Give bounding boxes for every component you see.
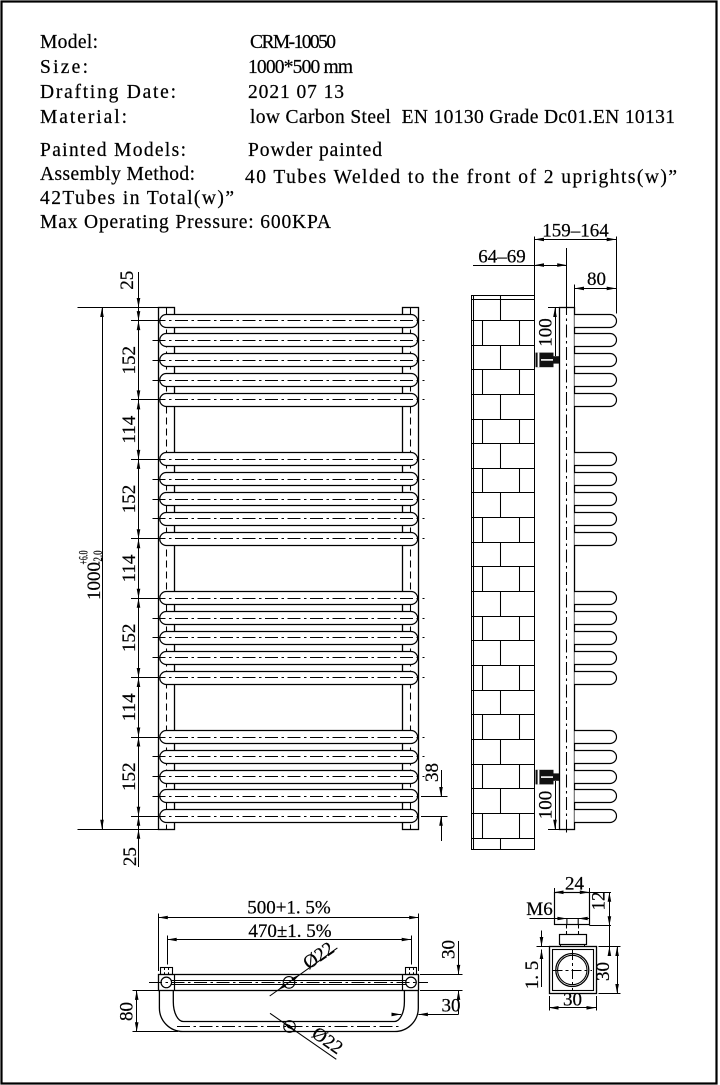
- svg-text:25: 25: [117, 271, 138, 290]
- svg-text:30: 30: [442, 996, 461, 1017]
- svg-text:38: 38: [422, 763, 443, 782]
- svg-text:12: 12: [588, 892, 609, 911]
- svg-text:64–69: 64–69: [478, 246, 526, 267]
- svg-text:114: 114: [119, 554, 140, 582]
- svg-text:159–164: 159–164: [542, 220, 609, 241]
- svg-text:Material:: Material:: [40, 107, 127, 128]
- svg-text:80: 80: [587, 269, 606, 290]
- svg-text:100: 100: [536, 318, 557, 347]
- svg-text:152: 152: [119, 762, 140, 791]
- svg-text:100: 100: [536, 791, 557, 820]
- svg-text:500+1. 5%: 500+1. 5%: [247, 898, 331, 919]
- svg-text:42Tubes in Total(w)”: 42Tubes in Total(w)”: [40, 188, 234, 209]
- svg-text:24: 24: [565, 874, 585, 895]
- svg-text:Assembly Method:: Assembly Method:: [40, 164, 195, 185]
- svg-text:low Carbon Steel EN 10130 Gra: low Carbon Steel EN 10130 Grade Dc01.EN …: [250, 107, 675, 128]
- svg-text:152: 152: [119, 485, 140, 514]
- svg-text:30: 30: [593, 962, 614, 981]
- svg-text:+6.0: +6.0: [75, 551, 90, 565]
- svg-text:Powder painted: Powder painted: [248, 140, 382, 161]
- svg-text:152: 152: [119, 346, 140, 375]
- svg-text:Max Operating Pressure: 600KPA: Max Operating Pressure: 600KPA: [40, 212, 331, 233]
- svg-text:40 Tubes Welded to the front o: 40 Tubes Welded to the front of 2 uprigh…: [245, 167, 677, 188]
- svg-text:114: 114: [119, 693, 140, 721]
- svg-text:1. 5: 1. 5: [522, 961, 543, 990]
- svg-text:-2.0: -2.0: [90, 551, 105, 565]
- svg-text:25: 25: [120, 847, 141, 866]
- svg-text:470±1. 5%: 470±1. 5%: [248, 921, 331, 942]
- svg-text:152: 152: [119, 624, 140, 653]
- svg-text:30: 30: [563, 990, 582, 1011]
- svg-text:80: 80: [117, 1002, 138, 1021]
- svg-text:1000: 1000: [84, 562, 105, 600]
- svg-text:114: 114: [119, 415, 140, 443]
- svg-text:CRM-10050: CRM-10050: [250, 32, 336, 53]
- svg-text:Drafting Date:: Drafting Date:: [40, 82, 176, 103]
- svg-text:1000*500 mm: 1000*500 mm: [248, 57, 353, 78]
- svg-text:2021 07 13: 2021 07 13: [248, 82, 344, 103]
- svg-text:Model:: Model:: [40, 32, 98, 53]
- svg-text:30: 30: [439, 940, 460, 959]
- svg-text:M6: M6: [526, 899, 552, 920]
